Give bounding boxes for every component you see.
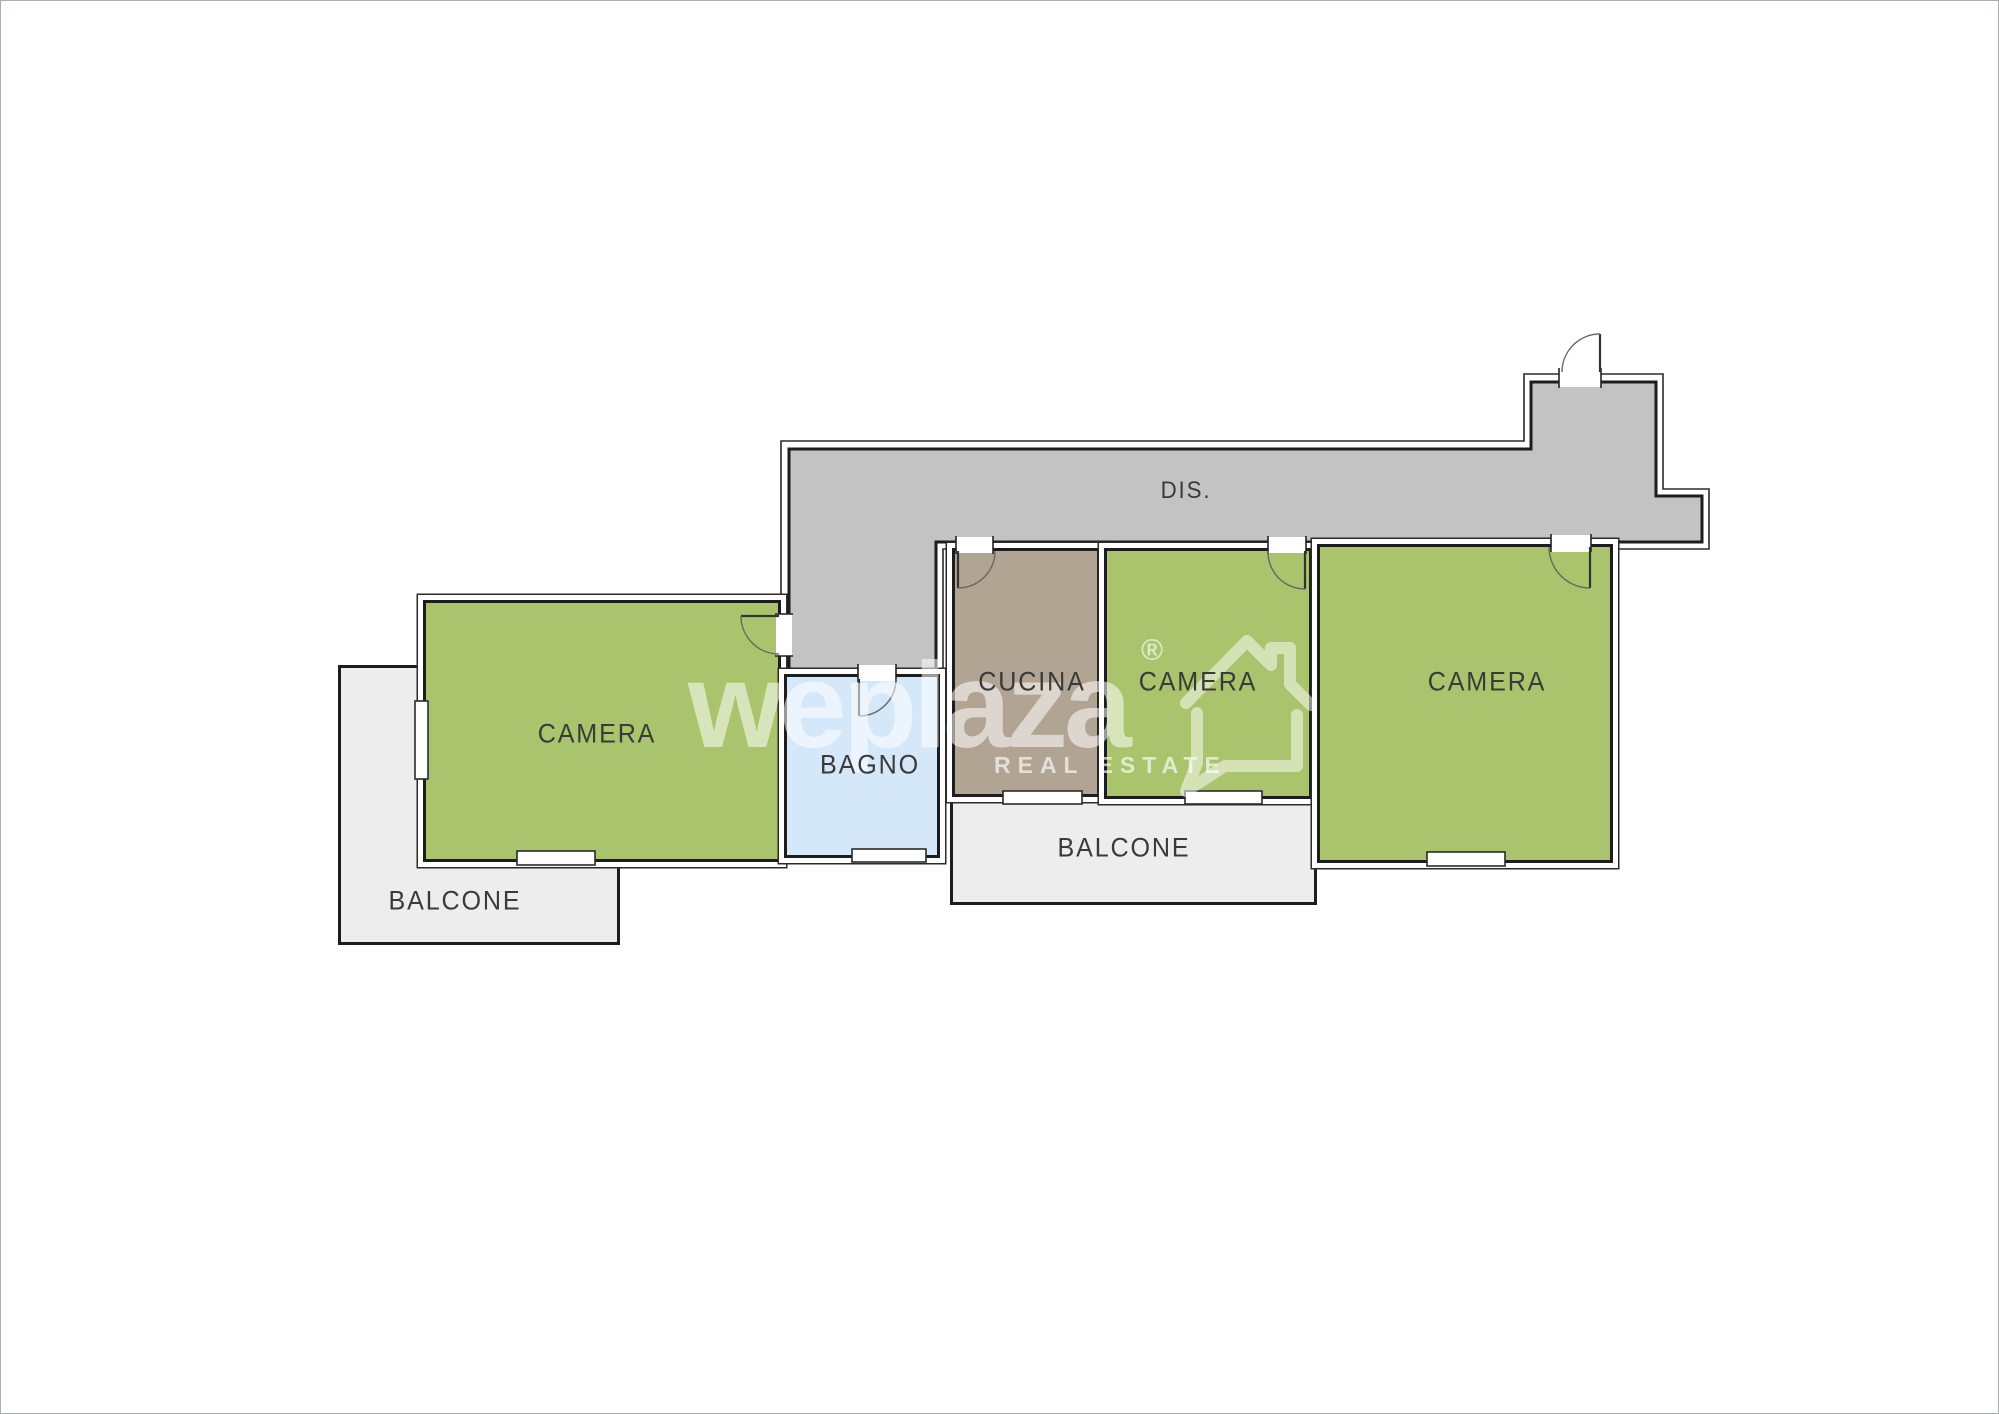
door-threshold xyxy=(776,369,1601,681)
label-dis: DIS. xyxy=(1161,477,1212,505)
registered-trademark-icon: ® xyxy=(1141,636,1163,666)
label-camera-left: CAMERA xyxy=(538,719,657,750)
label-cucina: CUCINA xyxy=(978,667,1085,698)
floor-plan: weplaza ® REAL ESTATE DIS. CAMERA BAGNO … xyxy=(0,0,1999,1414)
label-camera-mid: CAMERA xyxy=(1139,667,1258,698)
door-jambs xyxy=(775,368,1601,682)
label-bagno: BAGNO xyxy=(820,750,920,781)
label-balcone-bottom: BALCONE xyxy=(1057,833,1190,864)
watermark-tagline: REAL ESTATE xyxy=(994,752,1227,778)
label-camera-right: CAMERA xyxy=(1428,667,1547,698)
label-balcone-left: BALCONE xyxy=(388,886,521,917)
watermark-brand: weplaza xyxy=(688,644,1128,766)
